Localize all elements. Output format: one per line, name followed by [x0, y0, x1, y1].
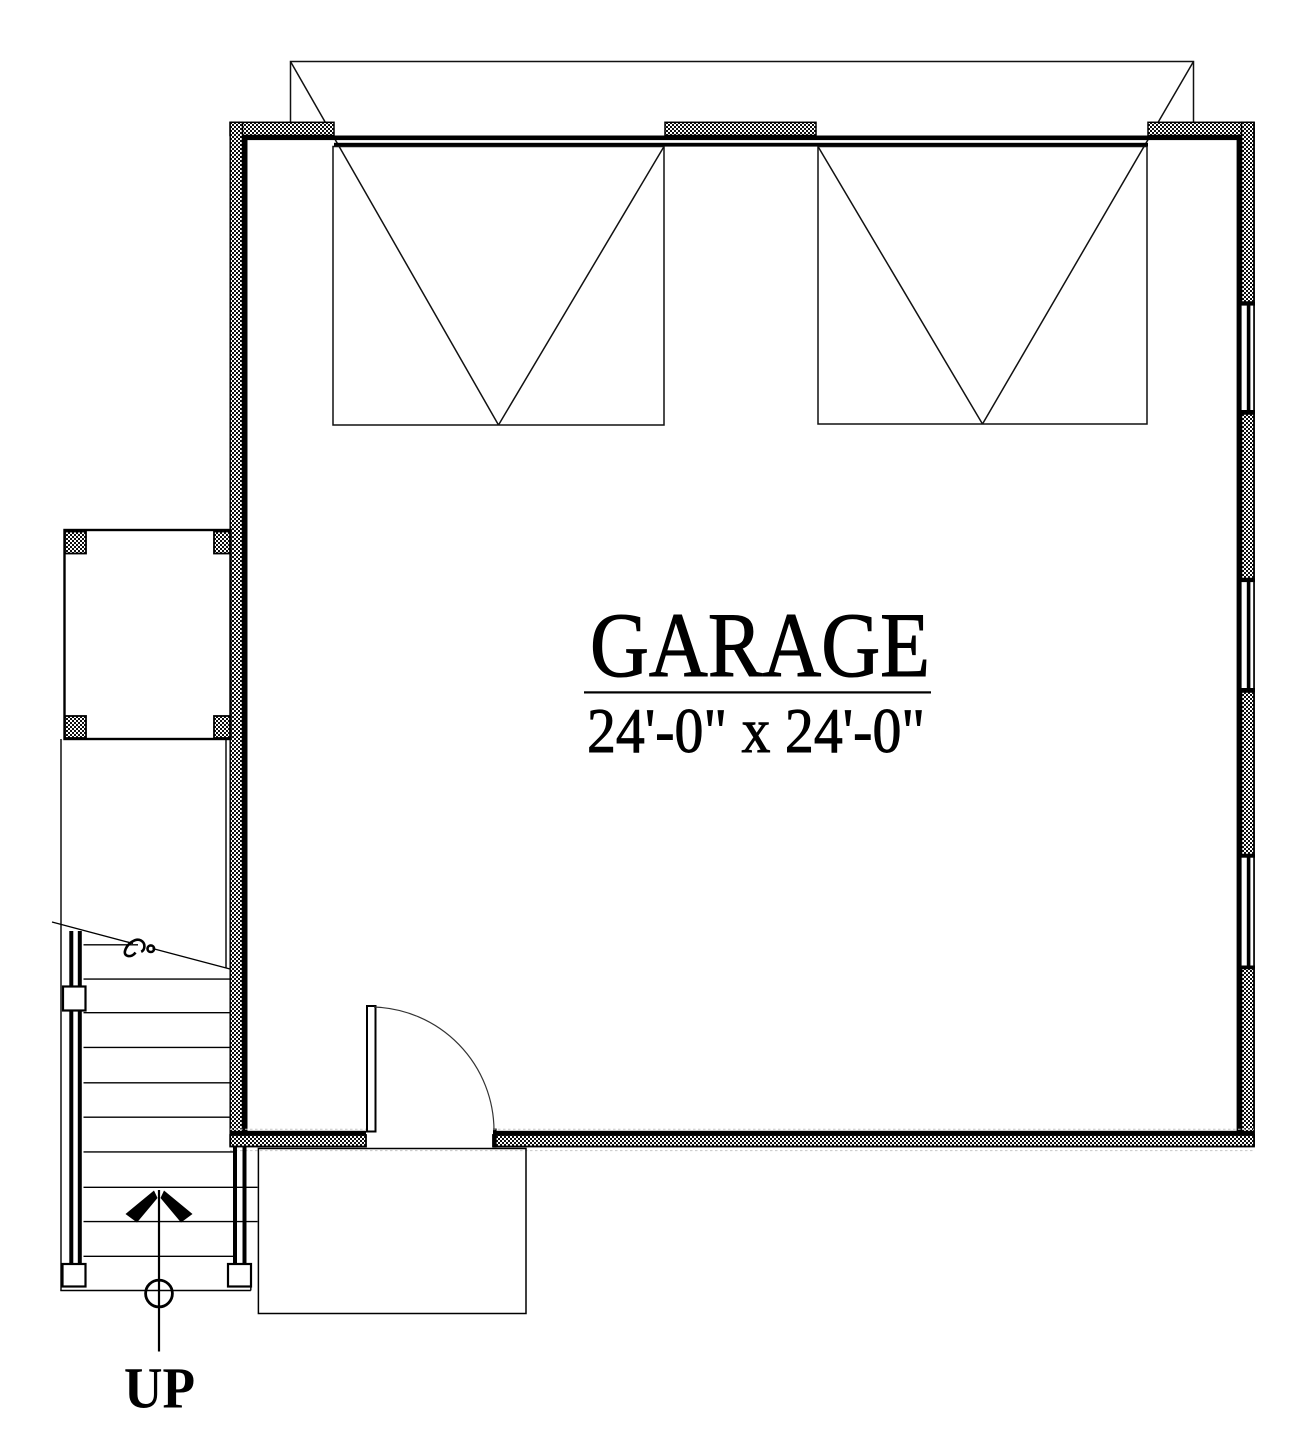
svg-text:24'-0" x 24'-0": 24'-0" x 24'-0": [587, 695, 925, 766]
svg-text:UP: UP: [124, 1356, 195, 1421]
svg-text:GARAGE: GARAGE: [590, 594, 930, 696]
